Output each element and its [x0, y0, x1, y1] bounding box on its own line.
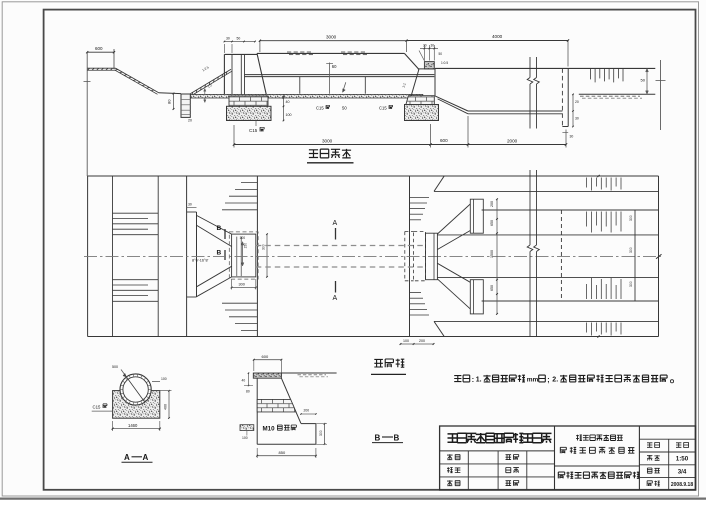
svg-text:B: B [217, 250, 222, 257]
svg-text::: : [472, 377, 474, 384]
svg-text:20: 20 [188, 119, 192, 123]
svg-text:80: 80 [167, 99, 172, 104]
svg-text:1460: 1460 [128, 423, 138, 428]
svg-text:A: A [143, 453, 149, 462]
svg-text:30: 30 [570, 135, 574, 139]
svg-text:200: 200 [304, 409, 310, 413]
svg-text:C15: C15 [316, 106, 324, 111]
svg-text:40: 40 [242, 379, 246, 383]
svg-text:A: A [333, 295, 338, 302]
svg-text:2008.9.18: 2008.9.18 [671, 482, 693, 488]
svg-text:300: 300 [629, 281, 633, 287]
svg-text:1:0.5: 1:0.5 [441, 61, 448, 65]
svg-text:3000: 3000 [322, 139, 333, 144]
svg-text:B: B [217, 225, 222, 232]
svg-text:30: 30 [423, 44, 427, 48]
svg-text:50: 50 [641, 78, 646, 83]
svg-text:300: 300 [319, 430, 323, 436]
svg-text:8°6'-16°8': 8°6'-16°8' [192, 259, 209, 263]
svg-text:850: 850 [279, 450, 286, 455]
svg-text:400: 400 [163, 404, 167, 410]
svg-text:600: 600 [440, 138, 448, 143]
svg-text:100: 100 [403, 339, 409, 343]
svg-text:100: 100 [161, 377, 167, 381]
svg-text:300: 300 [262, 244, 266, 250]
svg-text:30: 30 [188, 203, 192, 207]
svg-text:C15: C15 [249, 128, 258, 133]
svg-text:4000: 4000 [492, 34, 503, 39]
svg-text:300: 300 [239, 282, 245, 286]
svg-text:1:50: 1:50 [676, 456, 689, 463]
svg-text:30: 30 [431, 44, 435, 48]
svg-text:150: 150 [244, 243, 248, 249]
svg-text:40: 40 [286, 100, 290, 104]
svg-text:650: 650 [490, 285, 494, 291]
svg-text:C15: C15 [93, 405, 101, 410]
svg-text:500: 500 [112, 365, 118, 369]
svg-text:mm: mm [527, 377, 539, 384]
svg-text:650: 650 [490, 220, 494, 226]
svg-text:;: ; [547, 377, 549, 384]
svg-text:B: B [394, 434, 400, 443]
svg-text:3/4: 3/4 [678, 468, 687, 475]
svg-text:80: 80 [246, 390, 250, 394]
svg-text:100: 100 [286, 113, 292, 117]
svg-text:300: 300 [629, 247, 633, 253]
svg-text:C15: C15 [379, 106, 387, 111]
svg-text:3000: 3000 [326, 35, 337, 40]
svg-text:2000: 2000 [507, 139, 518, 144]
svg-text:200: 200 [490, 201, 494, 207]
svg-text:20: 20 [575, 100, 579, 104]
svg-text:60: 60 [332, 64, 337, 69]
svg-text:200: 200 [419, 339, 425, 343]
svg-text:100: 100 [242, 436, 248, 440]
svg-text:300: 300 [629, 215, 633, 221]
svg-text:M10: M10 [263, 426, 276, 433]
svg-text:1500: 1500 [490, 250, 494, 258]
svg-text:600: 600 [95, 46, 103, 51]
svg-text:B: B [375, 434, 381, 443]
svg-text:30: 30 [575, 117, 579, 121]
svg-text:30: 30 [226, 37, 230, 41]
svg-text:100: 100 [240, 236, 246, 240]
svg-text:50: 50 [237, 37, 241, 41]
svg-text:50: 50 [342, 106, 347, 111]
svg-text:2.: 2. [552, 377, 558, 384]
svg-text:1.: 1. [476, 377, 482, 384]
svg-text:A: A [333, 220, 338, 227]
svg-text:600: 600 [262, 354, 269, 359]
svg-text:A: A [124, 453, 130, 462]
svg-text:50: 50 [439, 52, 443, 56]
